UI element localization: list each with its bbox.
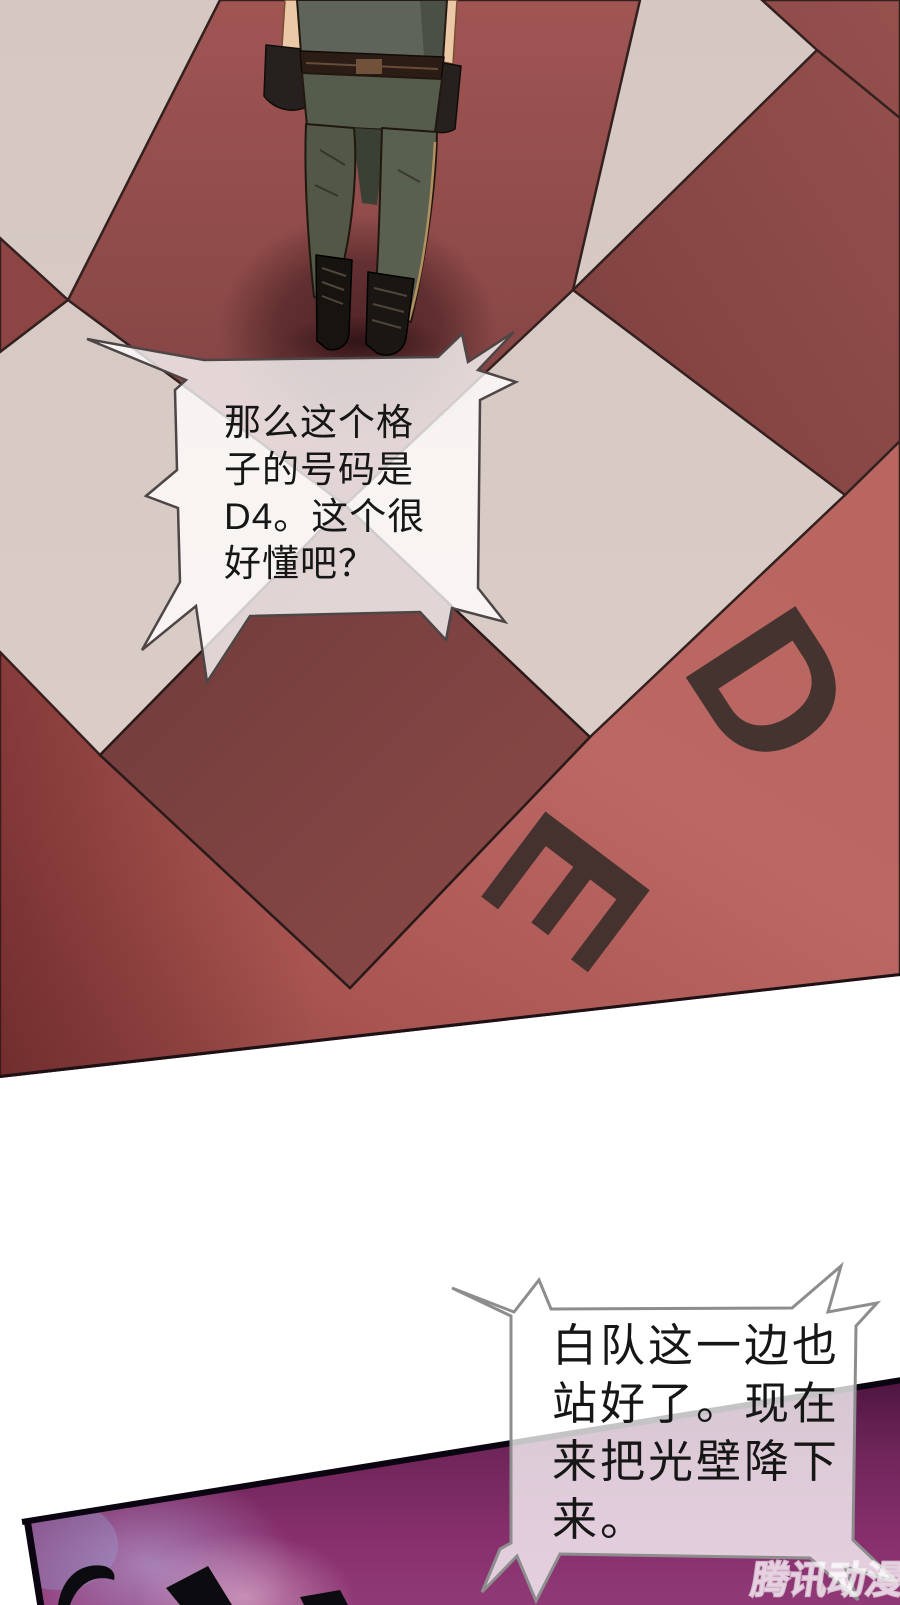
bubble-line: 站好了。现在: [552, 1375, 840, 1433]
belt-buckle: [356, 59, 382, 74]
bubble-line: 来。: [552, 1491, 840, 1549]
bubble-line: 子的号码是: [224, 446, 425, 493]
bubble-line: 来把光壁降下: [552, 1433, 840, 1491]
left-boot: [316, 255, 352, 350]
bubble-line: 那么这个格: [224, 399, 425, 446]
pants-hips: [302, 73, 442, 132]
bubble-line: D4。这个很: [224, 493, 425, 540]
speech-bubble-top-text: 那么这个格 子的号码是 D4。这个很 好懂吧？: [224, 399, 425, 587]
watermark: 腾讯动漫: [748, 1549, 900, 1604]
bubble-line: 白队这一边也: [552, 1317, 840, 1375]
tank-top-shade: [420, 0, 447, 59]
comic-panel: D E: [0, 0, 900, 1605]
bubble-line: 好懂吧？: [224, 540, 425, 587]
speech-bubble-bottom-text: 白队这一边也 站好了。现在 来把光壁降下 来。: [552, 1317, 840, 1549]
